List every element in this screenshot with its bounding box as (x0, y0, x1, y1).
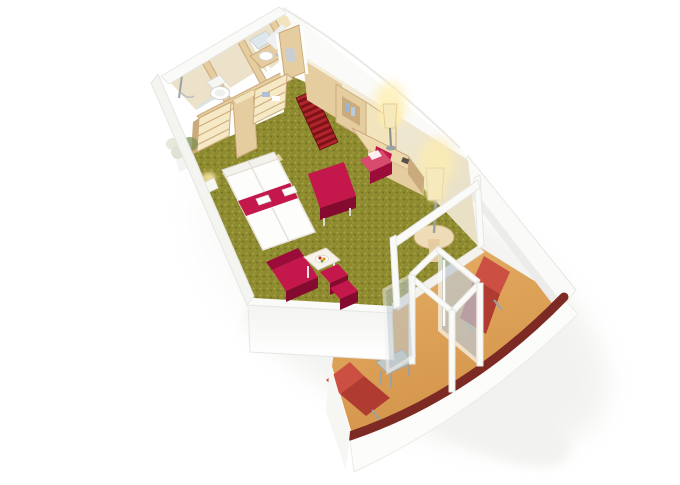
cabin-render-stage (0, 0, 680, 485)
door-panel (285, 48, 295, 63)
shelf-towel-blue (262, 92, 270, 97)
shelf-towel-white (272, 96, 280, 101)
cabin-3d-cutaway (0, 0, 680, 485)
niche-item-2 (351, 107, 355, 116)
niche-item-1 (345, 103, 349, 112)
